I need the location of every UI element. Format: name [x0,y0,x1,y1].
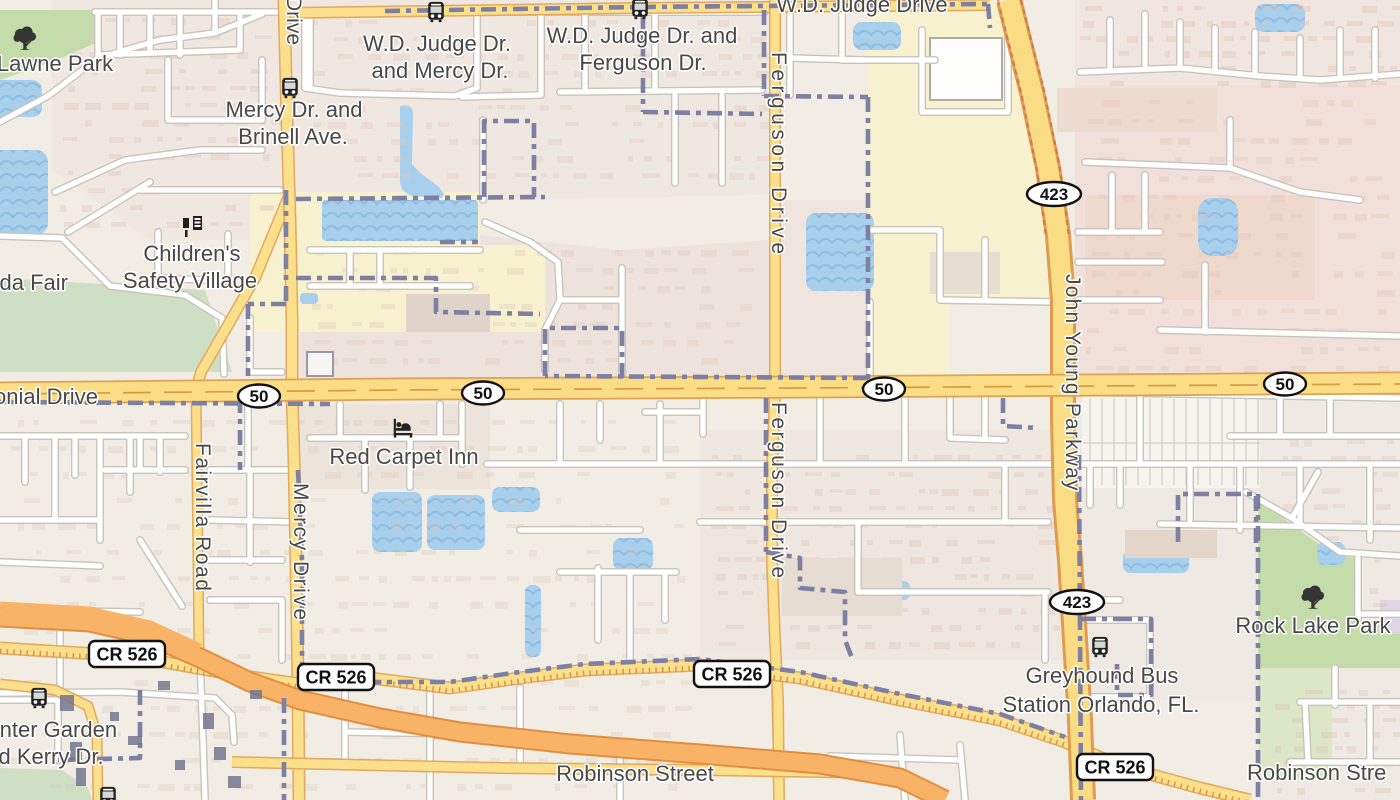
svg-text:Safety Village: Safety Village [123,268,257,293]
svg-text:Lawne Park: Lawne Park [0,51,114,76]
svg-text:CR 526: CR 526 [1084,758,1145,778]
svg-text:da Fair: da Fair [0,270,68,295]
svg-text:CR 526: CR 526 [96,645,157,665]
svg-text:50: 50 [474,384,493,403]
svg-text:W.D. Judge Dr.: W.D. Judge Dr. [363,31,511,56]
svg-text:423: 423 [1040,185,1068,204]
svg-text:CR 526: CR 526 [701,665,762,685]
svg-text:Winter Garden: Winter Garden [0,717,117,742]
svg-text:Robinson Street: Robinson Street [556,761,714,786]
svg-text:Rock Lake Park: Rock Lake Park [1235,613,1391,638]
svg-text:and Kerry Dr.: and Kerry Dr. [0,744,104,769]
svg-text:Ferguson Drive: Ferguson Drive [767,402,790,581]
svg-text:Fairvilla Road: Fairvilla Road [191,443,214,592]
svg-text:Brinell Ave.: Brinell Ave. [238,124,348,149]
svg-text:W.D. Judge Drive: W.D. Judge Drive [776,0,947,17]
svg-text:Drive: Drive [282,0,305,45]
svg-text:50: 50 [875,380,894,399]
svg-text:Ferguson Dr.: Ferguson Dr. [579,50,706,75]
svg-text:Ferguson Drive: Ferguson Drive [767,52,790,259]
svg-text:Mercy Drive: Mercy Drive [289,483,312,623]
svg-text:and Mercy Dr.: and Mercy Dr. [372,58,509,83]
svg-text:John Young Parkway: John Young Parkway [1061,274,1084,492]
svg-text:50: 50 [250,387,269,406]
svg-text:Robinson Stre: Robinson Stre [1247,760,1386,785]
svg-text:Station Orlando, FL.: Station Orlando, FL. [1003,692,1200,717]
svg-text:Mercy Dr. and: Mercy Dr. and [226,97,363,122]
svg-text:50: 50 [1276,375,1295,394]
svg-text:Children's: Children's [143,241,240,266]
svg-text:onial Drive: onial Drive [0,384,98,409]
svg-text:Red Carpet Inn: Red Carpet Inn [329,444,478,469]
svg-text:W.D. Judge Dr. and: W.D. Judge Dr. and [547,23,738,48]
svg-text:423: 423 [1063,593,1091,612]
svg-text:CR 526: CR 526 [305,668,366,688]
svg-text:Greyhound Bus: Greyhound Bus [1026,663,1179,688]
